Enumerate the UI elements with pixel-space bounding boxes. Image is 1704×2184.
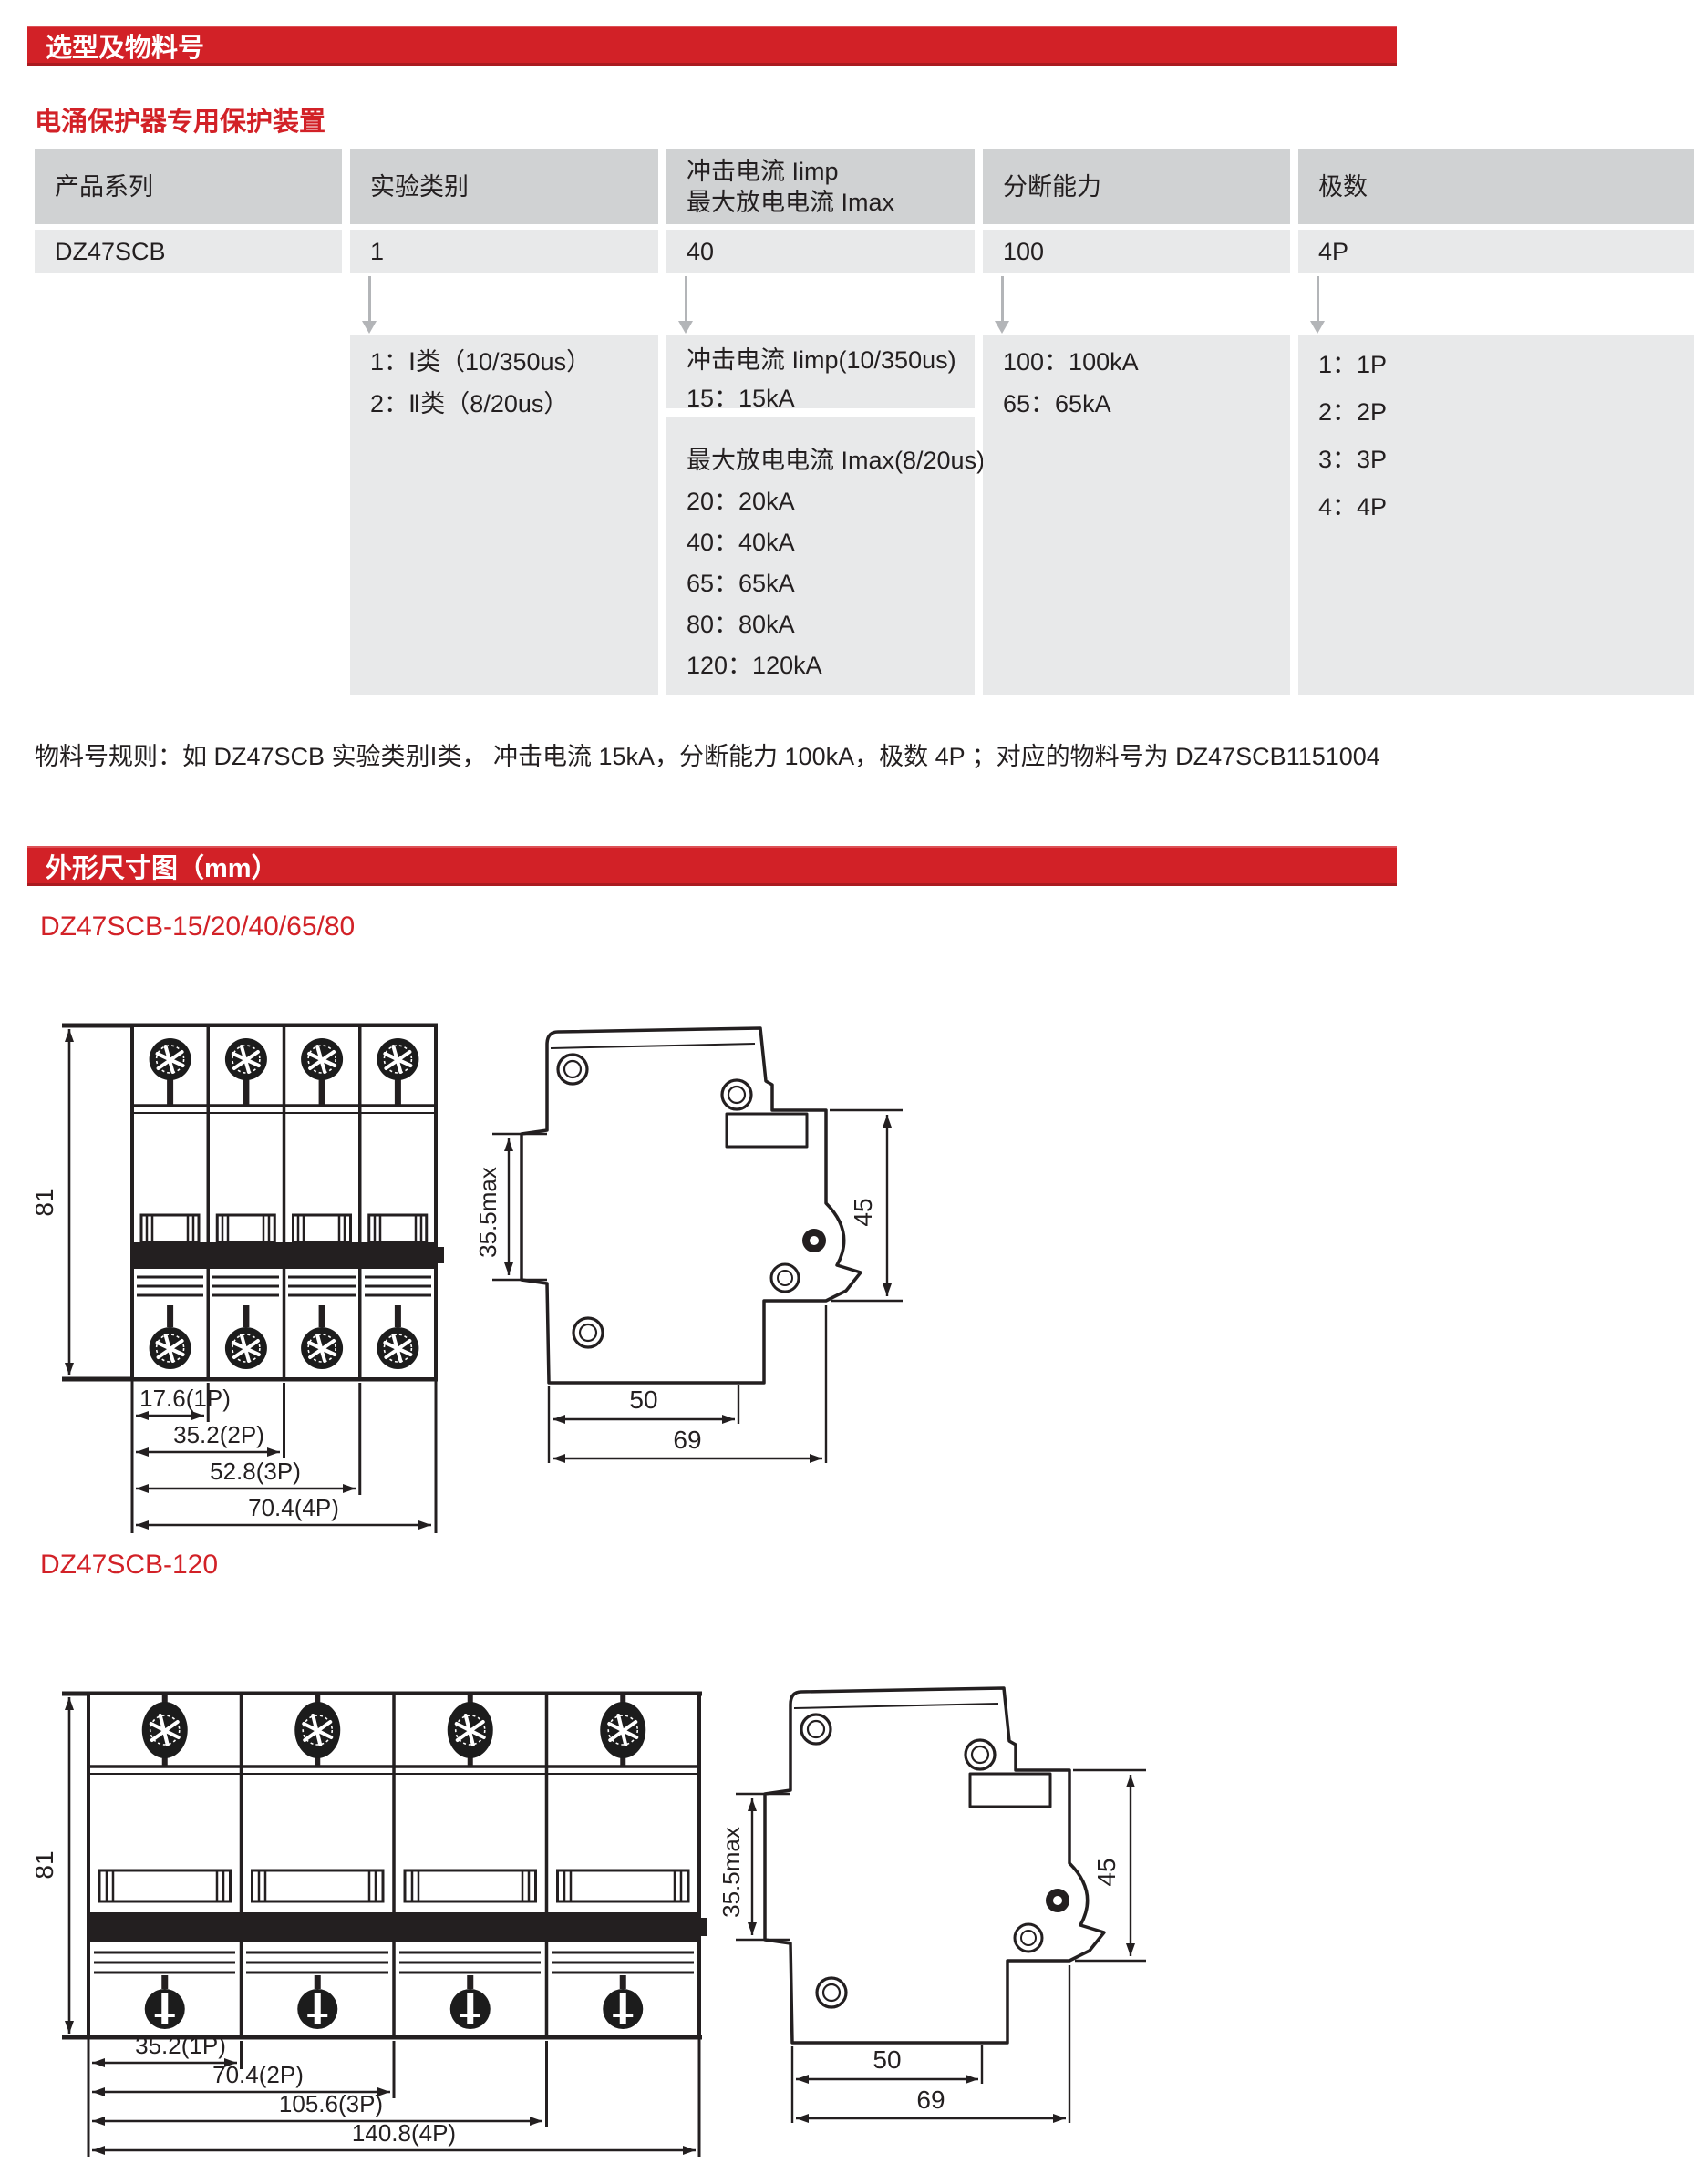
drawing2-caption: DZ47SCB-120 <box>40 1550 218 1581</box>
dim-label-rail-height: 45 <box>849 1198 877 1226</box>
drawing1-side-view: 35.5max 45 50 69 <box>474 1028 903 1463</box>
option-item: 20：20kA <box>687 481 966 522</box>
option-item: 15：15kA <box>687 379 966 417</box>
header-label: 极数 <box>1318 171 1694 202</box>
header-label: 实验类别 <box>370 171 658 202</box>
option-item: 40：40kA <box>687 522 966 563</box>
header-label: 分断能力 <box>1003 171 1290 202</box>
option-item: 100：100kA <box>1003 341 1281 383</box>
header-label-line2: 最大放电电流 Imax <box>687 187 975 218</box>
options-iimp: 冲击电流 Iimp(10/350us) 15：15kA <box>666 335 975 408</box>
dim-label-total-depth: 69 <box>673 1426 701 1454</box>
col-header-test-class: 实验类别 <box>350 149 658 224</box>
options-test-class: 1：Ⅰ类（10/350us） 2：Ⅱ类（8/20us） <box>350 335 658 695</box>
dim-label-rail-height: 45 <box>1092 1858 1121 1886</box>
dim-label-width-2p: 35.2(2P) <box>173 1421 264 1448</box>
section-header-selection: 选型及物料号 <box>27 26 1397 66</box>
dim-label-width-4p: 70.4(4P) <box>248 1494 339 1521</box>
col-header-product-series: 产品系列 <box>35 149 342 224</box>
dim-label-depth-front: 35.5max <box>718 1827 745 1918</box>
header-label-line1: 冲击电流 Iimp <box>687 156 975 187</box>
section-title: 外形尺寸图（mm） <box>46 847 278 885</box>
option-item: 65：65kA <box>687 563 966 604</box>
dim-label-width-3p: 105.6(3P) <box>279 2090 383 2117</box>
col-header-poles: 极数 <box>1298 149 1694 224</box>
drawing1-caption: DZ47SCB-15/20/40/65/80 <box>40 912 355 943</box>
value-impulse-current: 40 <box>666 230 975 273</box>
down-arrow-icon <box>685 276 687 322</box>
dim-label-width-2p: 70.4(2P) <box>212 2061 304 2088</box>
down-arrow-icon <box>678 321 693 334</box>
dim-label-total-depth: 69 <box>916 2086 945 2114</box>
handle-bar <box>132 1242 436 1269</box>
option-item: 2：Ⅱ类（8/20us） <box>370 383 649 425</box>
value-label: 40 <box>687 238 714 266</box>
option-item: 冲击电流 Iimp(10/350us) <box>687 341 966 379</box>
dim-label-depth-front: 35.5max <box>474 1167 501 1258</box>
drawing2-side-view: 35.5max 45 50 69 <box>718 1688 1146 2123</box>
option-item: 1：Ⅰ类（10/350us） <box>370 341 649 383</box>
options-imax: 最大放电电流 Imax(8/20us) 20：20kA 40：40kA 65：6… <box>666 417 975 695</box>
dim-label-width-1p: 35.2(1P) <box>135 2032 226 2059</box>
dim-label-height: 81 <box>36 1188 58 1216</box>
drawing2-front-view: 81 35.2(1P) 70.4(2P) 105.6(3P) 140.8(4P) <box>36 1694 707 2157</box>
option-item: 1：1P <box>1318 341 1685 388</box>
option-item: 80：80kA <box>687 604 966 645</box>
dim-label-base-width: 50 <box>629 1386 657 1414</box>
down-arrow-icon <box>1310 321 1325 334</box>
dim-label-width-4p: 140.8(4P) <box>352 2119 456 2147</box>
option-item: 120：120kA <box>687 645 966 686</box>
datasheet-page: 选型及物料号 电涌保护器专用保护装置 产品系列 实验类别 冲击电流 Iimp 最… <box>0 0 1704 2184</box>
value-label: DZ47SCB <box>55 238 166 266</box>
drawing2-dimension-figure: 81 35.2(1P) 70.4(2P) 105.6(3P) 140.8(4P)… <box>36 1659 1167 2184</box>
value-product-series: DZ47SCB <box>35 230 342 273</box>
dim-label-height: 81 <box>36 1850 58 1879</box>
value-breaking-capacity: 100 <box>983 230 1290 273</box>
option-item: 2：2P <box>1318 388 1685 436</box>
dim-label-base-width: 50 <box>873 2045 901 2074</box>
col-header-breaking-capacity: 分断能力 <box>983 149 1290 224</box>
col-header-impulse-current: 冲击电流 Iimp 最大放电电流 Imax <box>666 149 975 224</box>
down-arrow-icon <box>362 321 377 334</box>
material-number-rule: 物料号规则：如 DZ47SCB 实验类别Ⅰ类， 冲击电流 15kA，分断能力 1… <box>35 737 1676 772</box>
subtitle-spd-device: 电涌保护器专用保护装置 <box>35 100 325 139</box>
header-label: 产品系列 <box>55 171 342 202</box>
down-arrow-icon <box>1001 276 1004 322</box>
down-arrow-icon <box>368 276 371 322</box>
dim-label-width-1p: 17.6(1P) <box>139 1385 231 1412</box>
value-poles: 4P <box>1298 230 1694 273</box>
value-test-class: 1 <box>350 230 658 273</box>
handle-bar <box>88 1912 699 1942</box>
value-label: 1 <box>370 238 384 266</box>
value-label: 4P <box>1318 238 1348 266</box>
option-item: 最大放电电流 Imax(8/20us) <box>687 440 966 481</box>
section-header-dimensions: 外形尺寸图（mm） <box>27 846 1397 886</box>
down-arrow-icon <box>995 321 1009 334</box>
option-item: 3：3P <box>1318 436 1685 483</box>
option-item: 4：4P <box>1318 483 1685 531</box>
option-item: 65：65kA <box>1003 383 1281 425</box>
dim-label-width-3p: 52.8(3P) <box>210 1458 301 1485</box>
options-breaking-capacity: 100：100kA 65：65kA <box>983 335 1290 695</box>
section-title: 选型及物料号 <box>46 26 204 65</box>
value-label: 100 <box>1003 238 1044 266</box>
down-arrow-icon <box>1317 276 1319 322</box>
drawing1-dimension-figure: 81 17.6(1P) 35.2(2P) 52.8(3P) 70.4(4P) 3… <box>36 994 957 1540</box>
drawing1-front-view: 81 17.6(1P) 35.2(2P) 52.8(3P) 70.4(4P) <box>36 1025 444 1533</box>
options-poles: 1：1P 2：2P 3：3P 4：4P <box>1298 335 1694 695</box>
